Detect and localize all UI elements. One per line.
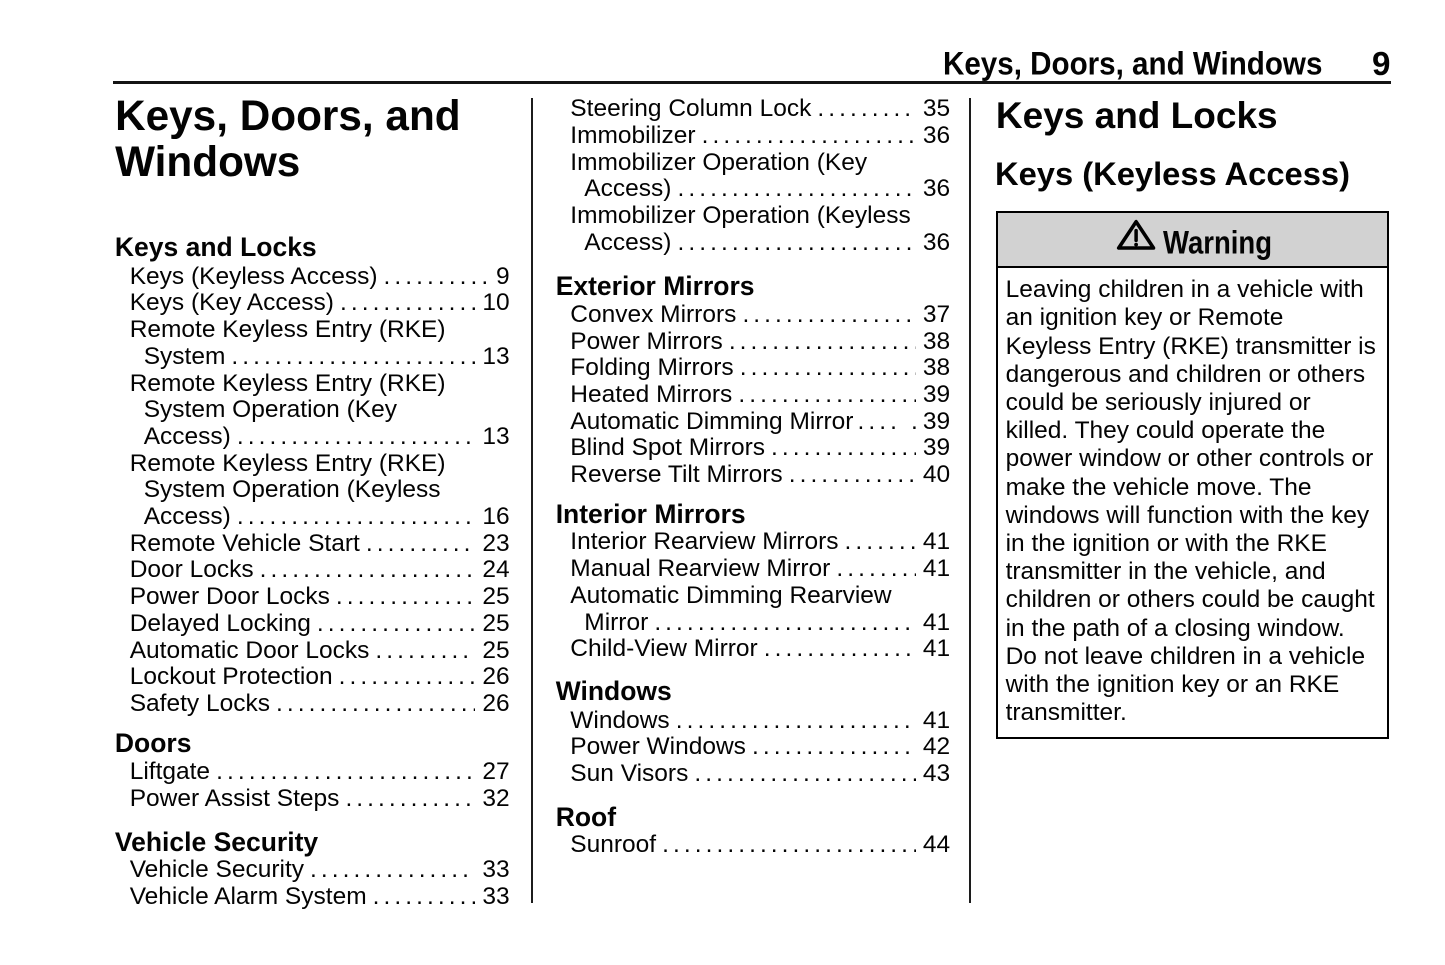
svg-text:Warning: Warning bbox=[1163, 224, 1272, 260]
svg-text:Keys, Doors, and Windows: Keys, Doors, and Windows bbox=[943, 46, 1322, 82]
